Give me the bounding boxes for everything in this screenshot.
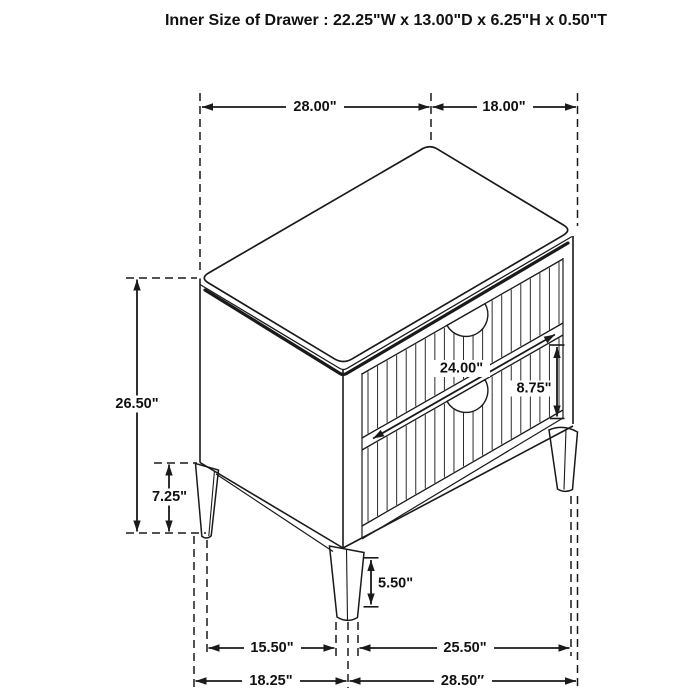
top-shadow-line xyxy=(205,243,568,375)
nightstand-dimension-diagram: 28.00" 18.00" 26.50" 7.25" 24.00" 8.75" … xyxy=(0,0,700,700)
nightstand-side-panel xyxy=(200,279,343,552)
nightstand-top xyxy=(200,147,572,375)
side-apron-line xyxy=(216,474,333,552)
dim-label-overall-height: 26.50" xyxy=(115,396,158,412)
drawer1-handle-scoop xyxy=(447,304,488,337)
back-left-leg xyxy=(196,464,219,539)
top-surface xyxy=(204,147,567,362)
dim-label-drawer-width: 24.00" xyxy=(440,361,483,377)
diagram-title: Inner Size of Drawer : 22.25"W x 13.00"D… xyxy=(165,12,607,29)
dim-label-leg-spacing-side: 15.50" xyxy=(250,640,293,656)
dim-label-top-depth: 18.00" xyxy=(482,99,525,115)
dim-label-drawer-height: 8.75" xyxy=(516,381,551,397)
dim-label-leg-spacing-front: 25.50" xyxy=(443,640,486,656)
dim-label-top-width: 28.00" xyxy=(293,99,336,115)
bottom-rail-line xyxy=(362,418,563,539)
dim-label-base-depth: 18.25" xyxy=(249,673,292,689)
dimension-diagram-page: 28.00" 18.00" 26.50" 7.25" 24.00" 8.75" … xyxy=(0,0,700,700)
dim-label-leg-height: 5.50" xyxy=(378,576,413,592)
dim-label-base-width: 28.50″ xyxy=(441,673,484,689)
side-bottom-edge xyxy=(200,463,343,549)
dim-label-base-height: 7.25" xyxy=(152,489,187,505)
